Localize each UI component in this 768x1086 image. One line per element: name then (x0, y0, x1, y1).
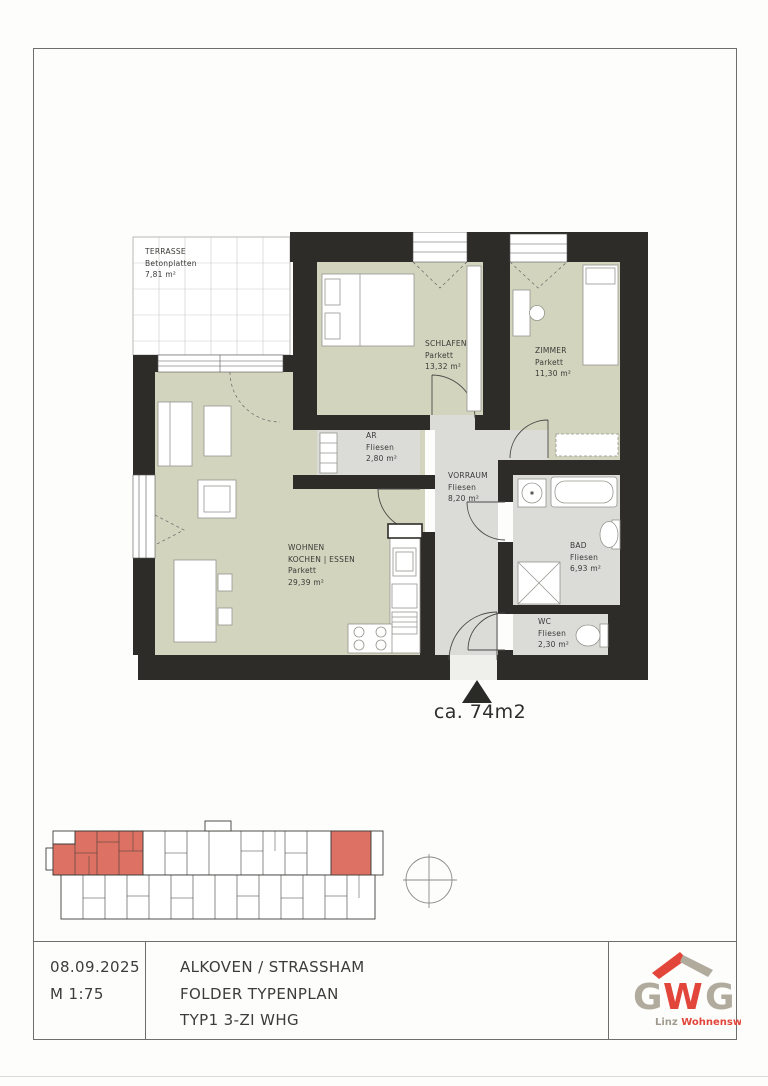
desk (513, 290, 530, 336)
title-block: 08.09.2025 M 1:75 ALKOVEN / STRASSHAM FO… (33, 941, 737, 1040)
room-label-ar: AR Fliesen 2,80 m² (366, 430, 397, 465)
logo-letters: G W G (633, 977, 735, 1018)
toilet-tank (600, 624, 608, 647)
floor-entrance (450, 655, 497, 680)
floor-plan: TERRASSE Betonplatten 7,81 m² SCHLAFEN P… (130, 232, 650, 682)
coffee-table (204, 406, 231, 456)
title-block-divider (608, 942, 609, 1040)
gwg-logo: G W G Linz Wohnenswert. (621, 949, 741, 1034)
kitchen-cabinet (388, 524, 422, 538)
room-label-wc: WC Fliesen 2,30 m² (538, 616, 569, 651)
cooktop (348, 624, 392, 653)
toilet (576, 625, 600, 646)
logo-tagline: Linz Wohnenswert. (655, 1017, 741, 1028)
wardrobe-dashed (556, 434, 618, 456)
dining-table (174, 560, 216, 642)
total-area-label: ca. 74m2 (410, 701, 550, 723)
sofa (158, 402, 192, 466)
survey-point-icon (403, 854, 459, 910)
plan-scale: M 1:75 (50, 985, 104, 1003)
project-name: ALKOVEN / STRASSHAM (180, 958, 365, 976)
logo-roof-right (680, 955, 713, 977)
room-label-schlafen: SCHLAFEN Parkett 13,32 m² (425, 338, 467, 373)
title-block-divider (145, 942, 146, 1040)
kitchen-sink (396, 552, 413, 571)
room-label-wohnen: WOHNEN KOCHEN | ESSEN Parkett 29,39 m² (288, 542, 355, 589)
floor-vorraum (435, 430, 498, 655)
room-label-terrasse: TERRASSE Betonplatten 7,81 m² (145, 246, 197, 281)
wardrobe (467, 266, 481, 411)
unit-type: TYP1 3-ZI WHG (180, 1011, 299, 1029)
highlighted-unit-right (331, 831, 371, 875)
room-label-vorraum: VORRAUM Fliesen 8,20 m² (448, 470, 488, 505)
building-overview-plan (45, 818, 395, 926)
room-label-zimmer: ZIMMER Parkett 11,30 m² (535, 345, 571, 380)
entrance-marker-icon (462, 680, 492, 703)
document-title: FOLDER TYPENPLAN (180, 985, 339, 1003)
plan-date: 08.09.2025 (50, 958, 140, 976)
paper-edge-line (0, 1076, 768, 1077)
room-label-bad: BAD Fliesen 6,93 m² (570, 540, 601, 575)
logo-roof-left (652, 952, 687, 979)
chair (530, 306, 545, 321)
